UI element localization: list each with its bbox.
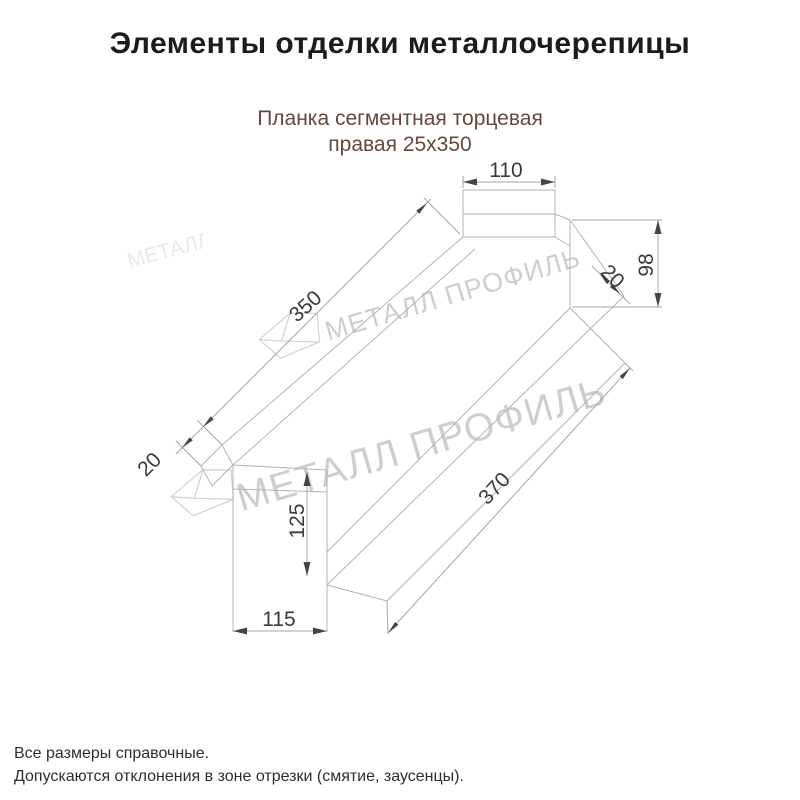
upper-strip-end-cap — [222, 445, 233, 465]
dim-right-height: 98 — [635, 253, 659, 276]
end-fold-tab — [201, 445, 233, 486]
tab-to-end-connectors — [555, 214, 570, 246]
right-end-bottom-cap — [570, 308, 625, 363]
ext-350-20 — [176, 198, 460, 466]
dim-bottom-tab-width: 115 — [262, 608, 295, 632]
bottom-tab-fold-line — [233, 489, 327, 492]
lower-face-top-edge — [327, 308, 570, 552]
technical-drawing-page: Элементы отделки металлочерепицы Планка … — [0, 0, 800, 800]
dim-tab-width: 110 — [489, 159, 522, 183]
note-line2: Допускаются отклонения в зоне отрезки (с… — [14, 765, 464, 788]
dimline-350-20 — [176, 199, 431, 454]
dim-bottom-tab-height: 125 — [286, 503, 310, 538]
footer-notes: Все размеры справочные. Допускаются откл… — [14, 742, 464, 788]
lower-face-fold-edge — [327, 296, 624, 585]
lower-face-left-cap — [327, 585, 387, 601]
bottom-tab-top-edge — [233, 465, 327, 470]
note-line1: Все размеры справочные. — [14, 742, 464, 765]
upper-strip-ridge — [233, 249, 475, 465]
upper-strip-top-edge — [222, 237, 463, 445]
plank-drawing — [0, 0, 800, 800]
